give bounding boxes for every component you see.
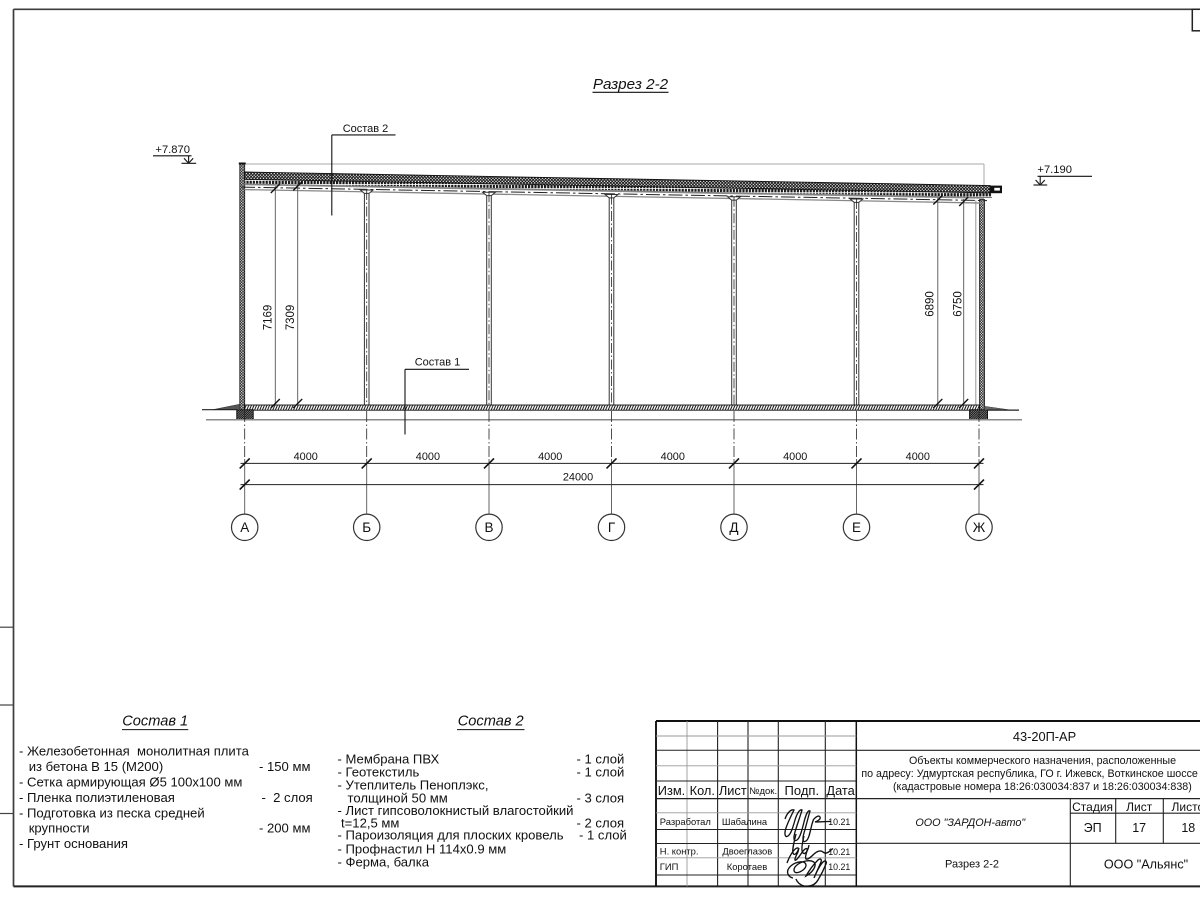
svg-text:ООО "Альянс": ООО "Альянс" <box>1104 858 1188 872</box>
svg-text:Состав 2: Состав 2 <box>343 123 389 135</box>
svg-text:Подп.: Подп. <box>785 783 820 798</box>
svg-text:4000: 4000 <box>906 451 930 463</box>
svg-text:Д: Д <box>729 520 738 535</box>
svg-text:Коротаев: Коротаев <box>727 861 768 872</box>
svg-text:- 150 мм: - 150 мм <box>259 759 311 774</box>
svg-text:Лист: Лист <box>1126 800 1153 814</box>
svg-text:Разработал: Разработал <box>660 816 711 827</box>
svg-text:- Пароизоляция для плоских кро: - Пароизоляция для плоских кровель <box>338 828 564 843</box>
svg-text:(кадастровые номера 18:26:0300: (кадастровые номера 18:26:030034:837 и 1… <box>893 781 1192 793</box>
svg-text:- Сетка армирующая Ø5 100х100: - Сетка армирующая Ø5 100х100 мм <box>19 775 242 790</box>
svg-text:10.21: 10.21 <box>828 817 850 827</box>
svg-text:Двоеглазов: Двоеглазов <box>722 846 772 857</box>
svg-text:ГИП: ГИП <box>660 861 679 872</box>
svg-text:- 2 слоя: - 2 слоя <box>262 790 313 805</box>
svg-text:- Грунт основания: - Грунт основания <box>19 836 128 851</box>
svg-text:+7.870: +7.870 <box>155 144 190 156</box>
svg-text:В: В <box>484 520 493 535</box>
svg-text:18: 18 <box>1181 821 1195 835</box>
svg-text:10.21: 10.21 <box>828 847 850 857</box>
svg-text:Дата: Дата <box>826 783 855 798</box>
svg-text:10.21: 10.21 <box>828 862 850 872</box>
svg-text:4000: 4000 <box>538 451 562 463</box>
svg-text:Лист: Лист <box>719 783 747 798</box>
svg-text:4000: 4000 <box>294 451 318 463</box>
svg-text:Стадия: Стадия <box>1072 800 1113 814</box>
svg-text:- Ферма, балка: - Ферма, балка <box>338 854 430 869</box>
svg-text:+7.190: +7.190 <box>1037 164 1072 176</box>
svg-text:Состав 1: Состав 1 <box>415 357 461 369</box>
svg-text:Состав 1: Состав 1 <box>122 713 188 729</box>
svg-text:- Пленка полиэтиленовая: - Пленка полиэтиленовая <box>19 790 175 805</box>
svg-text:4000: 4000 <box>416 451 440 463</box>
svg-text:4000: 4000 <box>783 451 807 463</box>
svg-text:- Железобетонная монолитная п: - Железобетонная монолитная плита <box>19 744 250 759</box>
svg-text:- 1 слой: - 1 слой <box>579 828 627 843</box>
svg-text:6890: 6890 <box>925 291 937 317</box>
svg-text:Кол.: Кол. <box>690 783 715 798</box>
svg-text:по адресу: Удмуртская республи: по адресу: Удмуртская республика, ГО г. … <box>861 768 1198 780</box>
svg-text:7169: 7169 <box>263 305 275 331</box>
svg-text:Ж: Ж <box>973 520 986 535</box>
svg-text:№док.: №док. <box>749 786 777 797</box>
svg-text:6750: 6750 <box>953 291 965 317</box>
svg-text:ООО "ЗАРДОН-авто": ООО "ЗАРДОН-авто" <box>915 817 1026 829</box>
svg-text:- 200 мм: - 200 мм <box>259 821 311 836</box>
svg-text:Разрез 2-2: Разрез 2-2 <box>593 76 669 93</box>
svg-text:- 3 слоя: - 3 слоя <box>577 791 625 806</box>
svg-text:- 1 слой: - 1 слой <box>577 764 625 779</box>
svg-text:Изм.: Изм. <box>658 783 685 798</box>
svg-text:А: А <box>240 520 249 535</box>
svg-text:- Подготовка из песка средней: - Подготовка из песка средней <box>19 805 205 820</box>
svg-text:ЭП: ЭП <box>1084 821 1102 835</box>
svg-text:7309: 7309 <box>285 305 297 331</box>
svg-text:Г: Г <box>608 520 616 535</box>
svg-text:Н. контр.: Н. контр. <box>660 846 699 857</box>
svg-text:4000: 4000 <box>661 451 685 463</box>
svg-text:из бетона В 15 (М200): из бетона В 15 (М200) <box>29 759 164 774</box>
svg-text:Разрез 2-2: Разрез 2-2 <box>945 858 999 870</box>
svg-text:43-20П-АР: 43-20П-АР <box>1013 729 1076 744</box>
svg-text:Объекты коммерческого назначен: Объекты коммерческого назначения, распол… <box>909 755 1176 767</box>
svg-text:24000: 24000 <box>563 472 593 484</box>
svg-text:Листов: Листов <box>1172 800 1200 814</box>
svg-text:Шабалина: Шабалина <box>722 816 768 827</box>
svg-text:Состав 2: Состав 2 <box>458 713 524 729</box>
svg-text:Б: Б <box>362 520 371 535</box>
svg-text:крупности: крупности <box>29 821 90 836</box>
svg-text:17: 17 <box>1132 821 1146 835</box>
svg-text:Е: Е <box>852 520 861 535</box>
